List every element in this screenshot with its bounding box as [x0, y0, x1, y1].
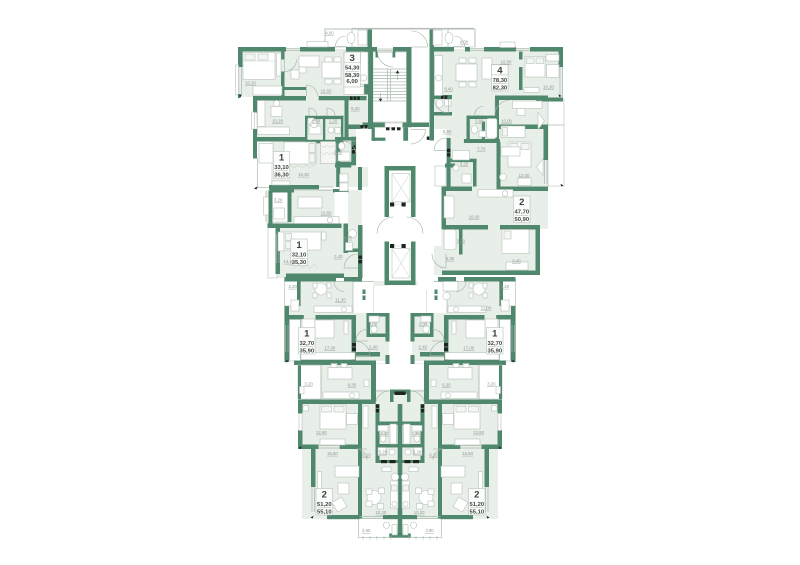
- svg-text:2,30: 2,30: [380, 431, 389, 436]
- svg-text:10,20: 10,20: [272, 119, 283, 124]
- svg-text:12,90: 12,90: [316, 430, 327, 435]
- svg-text:51,20: 51,20: [470, 502, 485, 508]
- svg-text:10,20: 10,20: [376, 510, 387, 515]
- svg-text:82,30: 82,30: [493, 86, 508, 92]
- svg-text:3,00: 3,00: [369, 322, 378, 327]
- svg-text:16,50: 16,50: [462, 451, 473, 456]
- svg-text:32,70: 32,70: [488, 341, 503, 347]
- svg-text:3,90: 3,90: [425, 528, 434, 533]
- svg-text:16,00: 16,00: [321, 89, 332, 94]
- svg-text:12,90: 12,90: [473, 430, 484, 435]
- svg-text:3,90: 3,90: [362, 528, 371, 533]
- svg-text:16,00: 16,00: [501, 60, 512, 65]
- svg-text:10,30: 10,30: [543, 85, 554, 90]
- svg-text:54,30: 54,30: [345, 66, 360, 72]
- svg-text:16,30: 16,30: [298, 172, 309, 177]
- svg-text:3,00: 3,00: [334, 150, 343, 155]
- svg-text:3: 3: [350, 53, 355, 64]
- svg-text:4: 4: [497, 66, 503, 77]
- svg-text:4,00: 4,00: [325, 31, 334, 36]
- svg-text:2,40: 2,40: [419, 345, 428, 350]
- svg-text:3,20: 3,20: [501, 284, 510, 289]
- svg-text:6,10: 6,10: [362, 453, 371, 458]
- svg-text:9,30: 9,30: [442, 383, 451, 388]
- svg-text:3,00: 3,00: [457, 239, 466, 244]
- svg-text:16,50: 16,50: [327, 451, 338, 456]
- svg-text:17,00: 17,00: [325, 346, 336, 351]
- svg-text:16,00: 16,00: [469, 215, 480, 220]
- svg-text:10,20: 10,20: [245, 81, 256, 86]
- svg-text:3,40: 3,40: [334, 254, 343, 259]
- svg-text:11,00: 11,00: [481, 306, 492, 311]
- svg-text:6,30: 6,30: [446, 256, 455, 261]
- svg-text:8,40: 8,40: [444, 87, 453, 92]
- svg-text:17,00: 17,00: [463, 346, 474, 351]
- svg-text:32,70: 32,70: [300, 341, 315, 347]
- svg-text:8,40: 8,40: [351, 106, 360, 111]
- svg-text:7,70: 7,70: [477, 147, 486, 152]
- svg-text:2,30: 2,30: [411, 431, 420, 436]
- svg-text:3,20: 3,20: [289, 284, 298, 289]
- svg-text:2,30: 2,30: [312, 119, 321, 124]
- svg-text:12,00: 12,00: [519, 173, 530, 178]
- svg-text:10,00: 10,00: [501, 119, 512, 124]
- svg-text:47,70: 47,70: [515, 210, 530, 216]
- svg-text:3,20: 3,20: [304, 382, 313, 387]
- svg-text:14,40: 14,40: [284, 259, 295, 264]
- svg-text:1,20: 1,20: [329, 119, 338, 124]
- svg-text:5,20: 5,20: [413, 450, 422, 455]
- svg-text:78,30: 78,30: [493, 78, 508, 84]
- svg-text:1: 1: [279, 153, 285, 164]
- svg-text:11,30: 11,30: [335, 298, 346, 303]
- svg-text:55,10: 55,10: [317, 510, 332, 516]
- svg-text:35,90: 35,90: [300, 349, 315, 355]
- svg-text:2: 2: [474, 490, 479, 501]
- svg-text:35,90: 35,90: [488, 349, 503, 355]
- svg-text:33,10: 33,10: [274, 165, 289, 171]
- svg-text:36,30: 36,30: [274, 173, 289, 179]
- svg-text:10,20: 10,20: [414, 510, 425, 515]
- svg-text:6,00: 6,00: [347, 79, 358, 85]
- svg-text:8,50: 8,50: [443, 129, 452, 134]
- svg-text:1: 1: [296, 240, 302, 251]
- svg-text:55,10: 55,10: [470, 510, 485, 516]
- svg-text:9,40: 9,40: [512, 259, 521, 264]
- svg-text:9,30: 9,30: [348, 383, 357, 388]
- svg-text:3,00: 3,00: [343, 235, 352, 240]
- svg-text:5,20: 5,20: [379, 450, 388, 455]
- svg-text:51,20: 51,20: [317, 502, 332, 508]
- svg-text:3,00: 3,00: [419, 322, 428, 327]
- svg-text:32,10: 32,10: [292, 253, 307, 259]
- svg-text:3,20: 3,20: [274, 198, 283, 203]
- svg-text:2: 2: [322, 490, 327, 501]
- svg-text:3,80: 3,80: [475, 119, 484, 124]
- svg-text:1: 1: [492, 329, 498, 340]
- svg-text:3,20: 3,20: [460, 162, 469, 167]
- svg-text:4,00: 4,00: [460, 40, 469, 45]
- svg-text:2: 2: [519, 197, 524, 208]
- svg-text:10,60: 10,60: [321, 211, 332, 216]
- svg-text:50,90: 50,90: [515, 217, 530, 223]
- svg-text:3,20: 3,20: [487, 382, 496, 387]
- svg-text:2,40: 2,40: [369, 345, 378, 350]
- svg-text:1: 1: [304, 329, 310, 340]
- svg-text:6,10: 6,10: [429, 453, 438, 458]
